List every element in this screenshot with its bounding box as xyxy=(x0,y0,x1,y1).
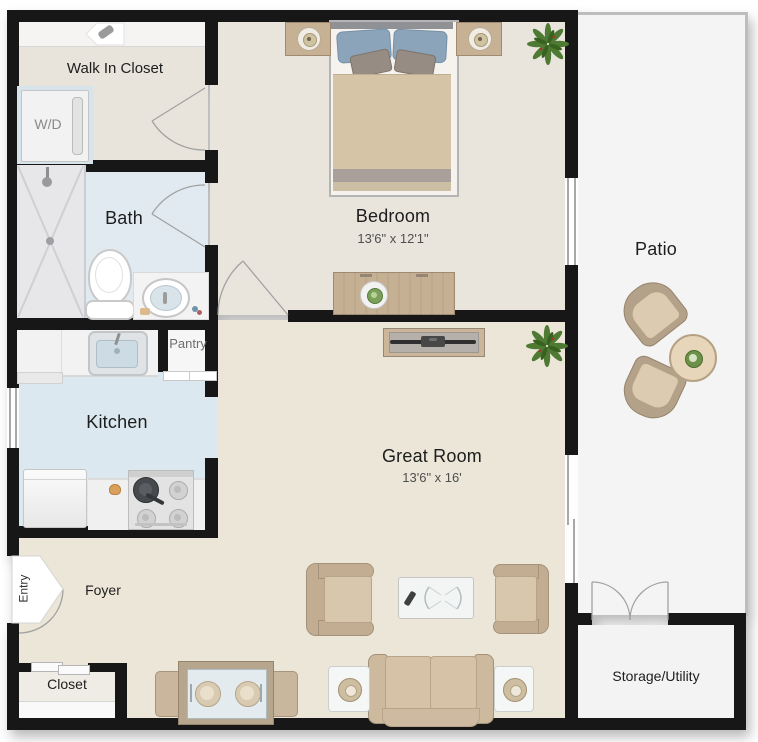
patio-border-right xyxy=(745,12,748,616)
lamp-icon xyxy=(468,27,492,51)
toilet xyxy=(88,249,132,305)
closet-sliding-door-2 xyxy=(58,665,90,675)
wall-left-lower xyxy=(7,623,19,730)
closet-shelf-band xyxy=(17,22,208,47)
bath-vanity xyxy=(133,272,209,320)
wall-kitchen-right-lower xyxy=(205,458,218,538)
wall-hall-1 xyxy=(205,22,218,85)
wall-hall-2 xyxy=(205,150,218,183)
wall-storage-top-left xyxy=(578,613,592,625)
remote-icon xyxy=(403,591,416,607)
place-setting-icon xyxy=(195,681,221,707)
washer-dryer: W/D xyxy=(21,90,89,162)
bed-blanket xyxy=(333,74,451,170)
side-table-left xyxy=(328,666,370,712)
lamp-icon xyxy=(338,678,362,702)
side-table-right xyxy=(494,666,534,712)
bedroom-window xyxy=(565,178,578,265)
bed-foot-strip xyxy=(333,182,451,191)
kitchen-label: Kitchen xyxy=(67,413,167,433)
bath-label: Bath xyxy=(84,209,164,229)
burner-icon xyxy=(169,481,188,500)
pantry-label: Pantry xyxy=(162,337,214,351)
great-room-label: Great Room xyxy=(362,447,502,467)
coffee-table xyxy=(398,577,474,619)
entry-label: Entry xyxy=(17,561,30,617)
bedroom-label: Bedroom xyxy=(333,207,453,227)
walk-in-closet-label: Walk In Closet xyxy=(57,61,173,78)
armchair-right xyxy=(493,564,549,632)
lamp-icon xyxy=(503,678,527,702)
garlic-icon xyxy=(109,484,121,495)
foyer-label: Foyer xyxy=(70,583,136,598)
kitchen-sink xyxy=(88,331,148,376)
wall-closet-top-left xyxy=(12,663,32,672)
floorplan: W/D Walk In Closet Bath Pantry Kitchen B… xyxy=(0,0,758,742)
nightstand-right xyxy=(456,22,502,56)
floorplan-canvas: W/D Walk In Closet Bath Pantry Kitchen B… xyxy=(0,0,758,742)
wall-left-mid xyxy=(7,448,19,556)
kitchen-window xyxy=(7,388,19,448)
coffee-table-glass-icon xyxy=(421,583,465,613)
shower xyxy=(17,165,86,318)
washer-dryer-label: W/D xyxy=(26,117,70,132)
patio-label: Patio xyxy=(616,240,696,260)
sofa xyxy=(368,650,492,727)
place-setting-icon xyxy=(235,681,261,707)
pantry-sliding-door xyxy=(163,371,217,381)
dining-table xyxy=(178,661,274,725)
refrigerator xyxy=(23,469,87,528)
nightstand-left xyxy=(285,22,331,56)
wall-right-mid xyxy=(565,265,578,455)
tv-console xyxy=(383,328,485,357)
armchair-left xyxy=(306,563,372,634)
dining-chair-right xyxy=(272,671,298,717)
lamp-icon xyxy=(297,27,321,51)
shower-pan-icon xyxy=(17,165,84,318)
closet-label: Closet xyxy=(32,677,102,692)
bed-headboard xyxy=(331,22,453,29)
wall-right-upper xyxy=(565,10,578,178)
dresser xyxy=(333,272,455,315)
bed-foot-bench xyxy=(333,169,451,182)
patio-sliding-door xyxy=(565,455,578,583)
wall-right-lower xyxy=(565,583,578,730)
washer-dryer-pad: W/D xyxy=(17,86,93,164)
potted-plant-icon xyxy=(360,281,388,309)
storage-utility-label: Storage/Utility xyxy=(596,669,716,684)
patio-table xyxy=(669,334,717,382)
wall-top xyxy=(7,10,578,22)
patio-border-top xyxy=(578,12,748,15)
bed xyxy=(329,20,459,197)
toilet-tank xyxy=(85,300,135,320)
great-room-dimensions: 13'6" x 16' xyxy=(362,471,502,485)
soap-icon xyxy=(140,308,150,315)
stove xyxy=(128,470,194,530)
wall-storage-right xyxy=(734,613,746,730)
bedroom-dimensions: 13'6" x 12'1" xyxy=(333,232,453,246)
wall-closet-right xyxy=(115,663,127,723)
